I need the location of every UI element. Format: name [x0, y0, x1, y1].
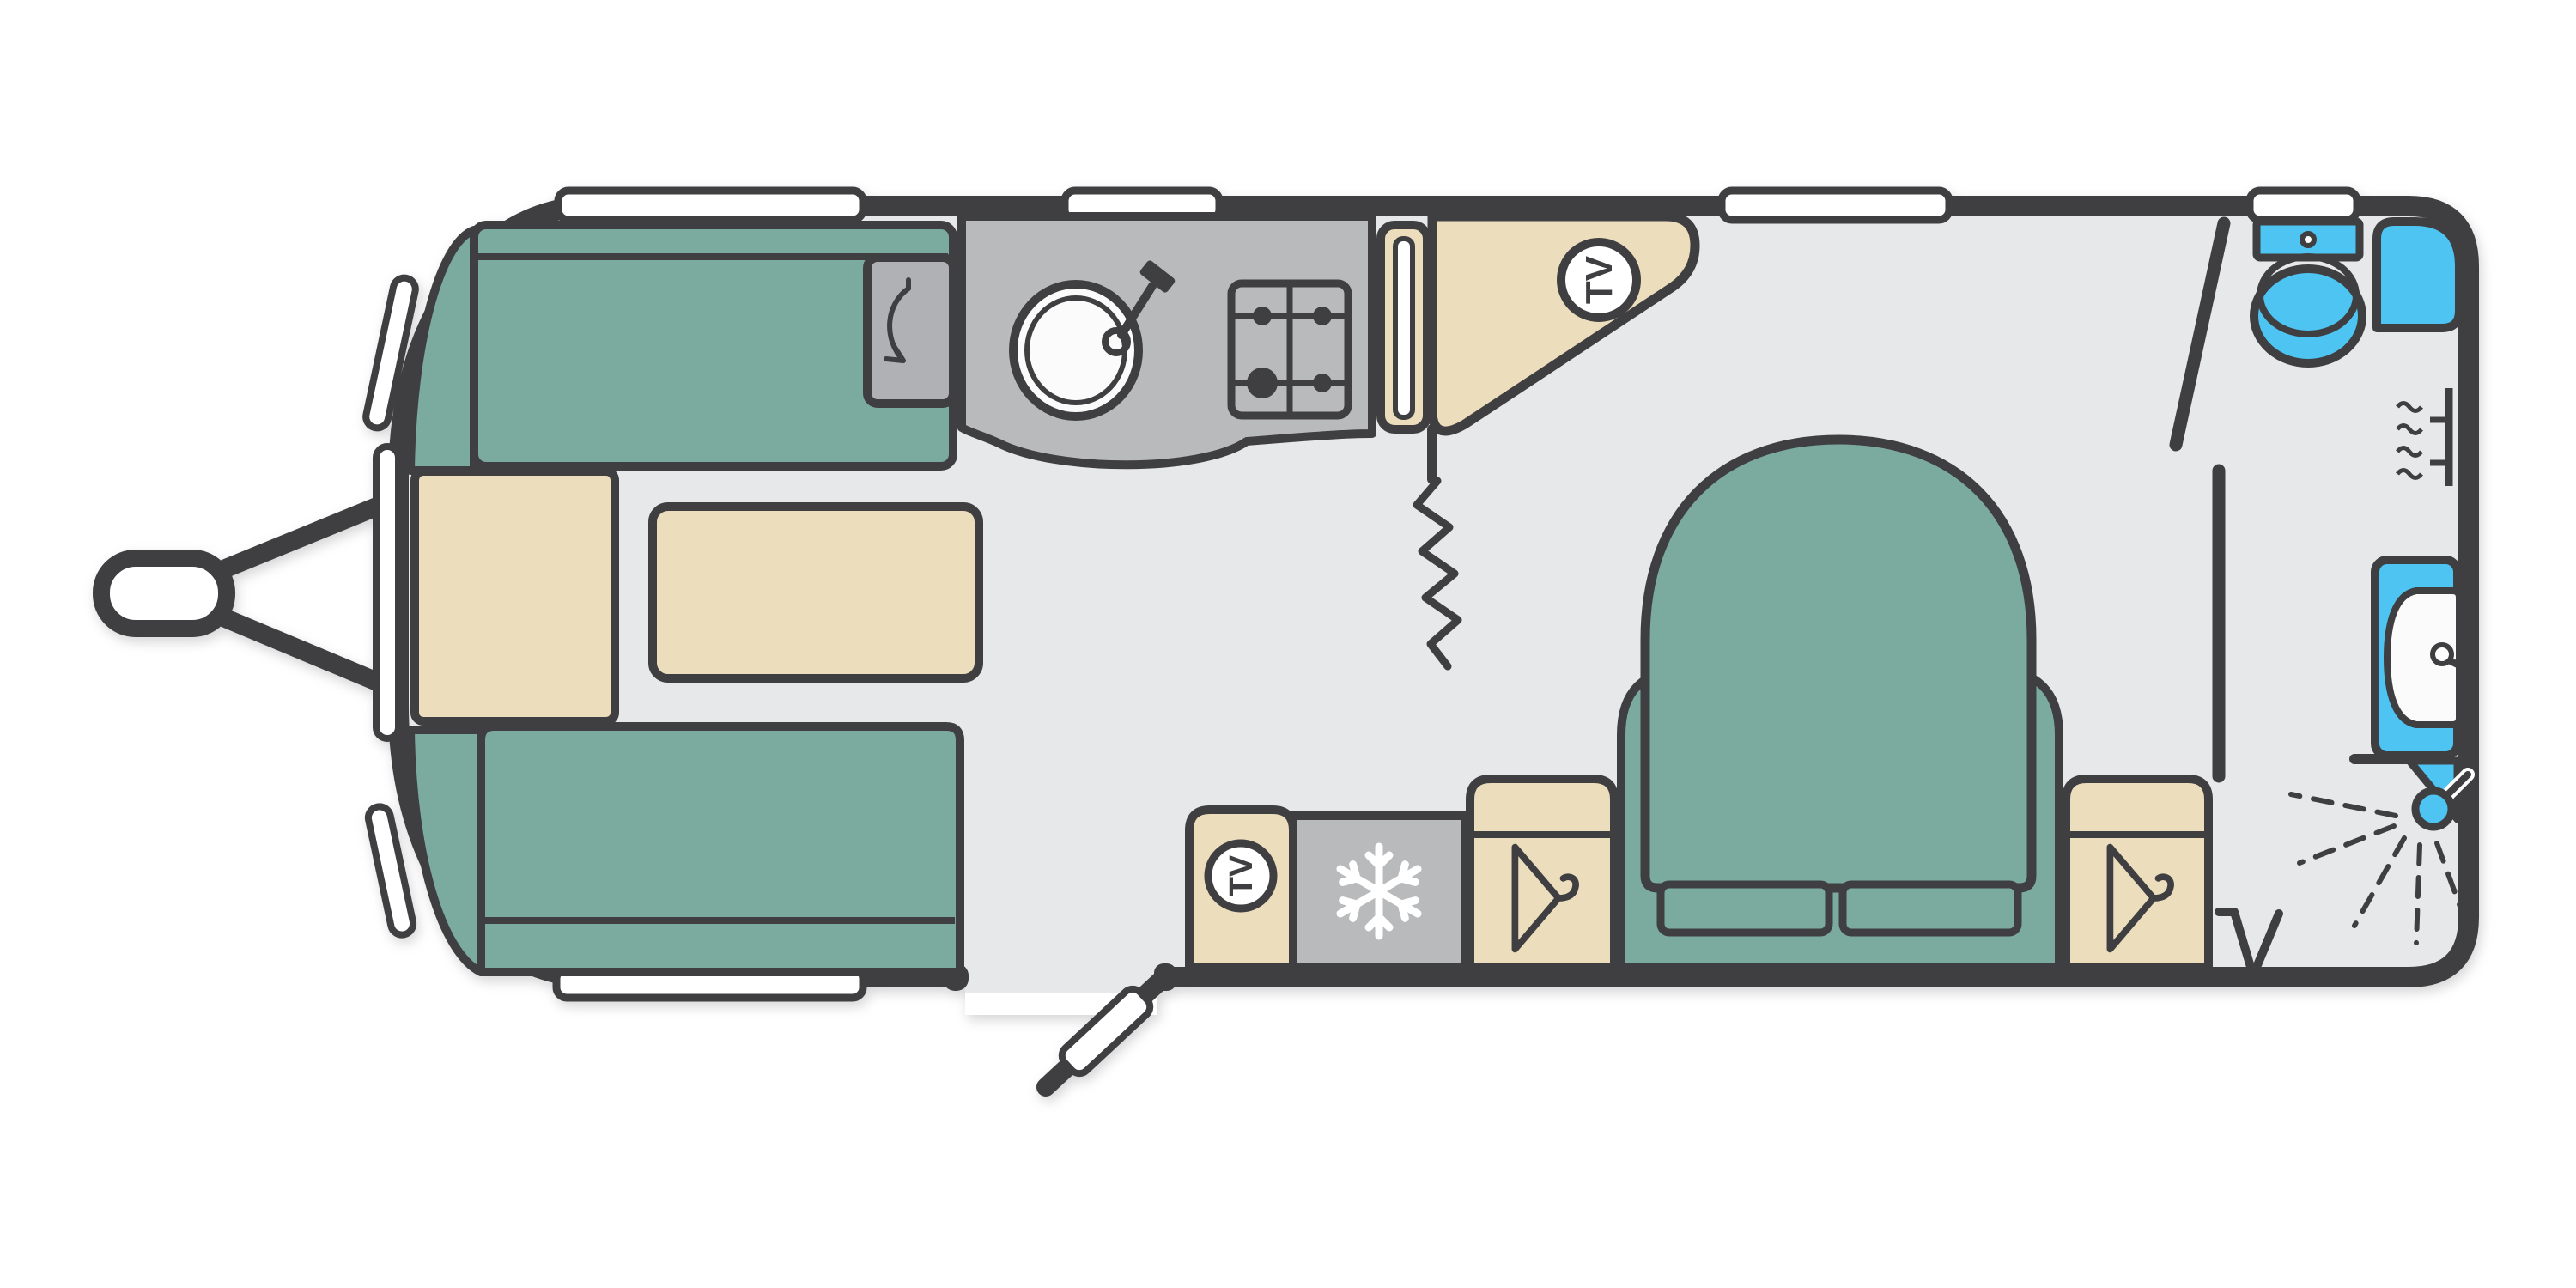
bed-pillow-left: [1661, 884, 1829, 933]
window-bedroom-top: [1722, 191, 1949, 220]
tow-hitch-a-frame: [101, 496, 402, 692]
toilet-icon: [2254, 222, 2362, 363]
lounge-table: [653, 507, 979, 678]
sofa-corner-wedge-bottom: [410, 730, 481, 972]
fridge: [1293, 816, 1465, 967]
bed-pillow-right: [1843, 884, 2018, 933]
caravan-floorplan: TV TV: [0, 0, 2576, 1288]
washbasin-tap: [2433, 645, 2451, 664]
shower-tray-icon: [2377, 222, 2459, 328]
sofa-front-bottom: [481, 726, 960, 972]
front-lounge: [410, 225, 979, 972]
window-front-middle: [376, 447, 398, 738]
burner-small-1: [1253, 307, 1272, 325]
bed-duvet: [1645, 440, 2032, 888]
larder-unit: [1381, 225, 1427, 429]
sofa-corner-wedge-top: [410, 230, 474, 471]
window-washroom-top: [2250, 191, 2357, 220]
shower-head: [2415, 791, 2451, 827]
tv-point-label-lounge: TV: [1578, 255, 1620, 304]
burner-small-3: [1313, 374, 1332, 392]
larder-door-stripe: [1395, 239, 1413, 417]
island-bed: [1621, 440, 2059, 967]
window-lounge-top: [558, 191, 863, 220]
tv-point-label-bedroom: TV: [1224, 854, 1260, 896]
wardrobe-left: [1470, 779, 1614, 967]
hitch-head: [101, 558, 227, 629]
wardrobe-right: [2066, 779, 2208, 967]
washbasin-icon: [2375, 560, 2468, 756]
mid-cabinet-tv: TV: [1189, 810, 1293, 967]
caravan: TV TV: [101, 191, 2470, 1087]
burner-large: [1247, 368, 1278, 398]
flip-up-shelf: [867, 258, 953, 404]
wardrobe-left-box: [1470, 779, 1614, 967]
burner-small-2: [1313, 307, 1332, 325]
wardrobe-right-box: [2066, 779, 2208, 967]
kitchen: [962, 216, 1427, 465]
front-chest: [415, 471, 615, 721]
toilet-flush-button: [2302, 234, 2314, 246]
